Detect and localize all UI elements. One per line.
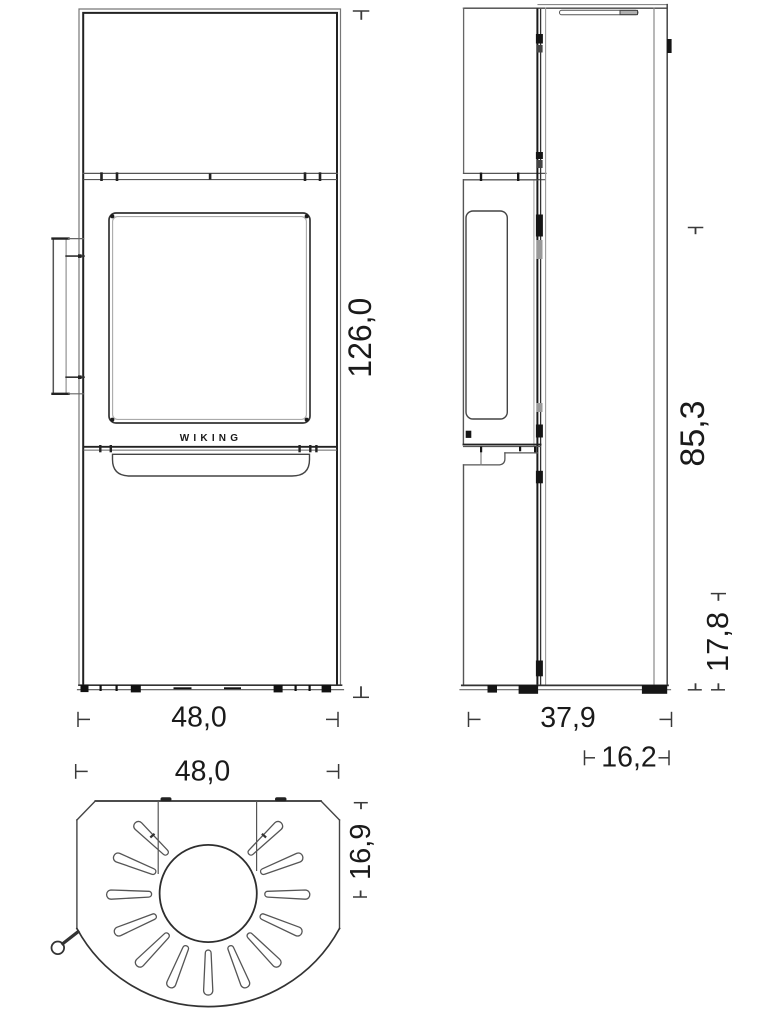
svg-text:16,9: 16,9	[345, 824, 377, 880]
svg-text:126,0: 126,0	[342, 298, 378, 378]
svg-text:37,9: 37,9	[540, 702, 595, 734]
svg-text:16,2: 16,2	[601, 742, 656, 774]
svg-text:WIKING: WIKING	[180, 433, 242, 444]
svg-text:17,8: 17,8	[700, 612, 735, 672]
svg-text:85,3: 85,3	[674, 400, 712, 466]
svg-text:48,0: 48,0	[171, 702, 226, 734]
svg-text:48,0: 48,0	[175, 756, 230, 788]
